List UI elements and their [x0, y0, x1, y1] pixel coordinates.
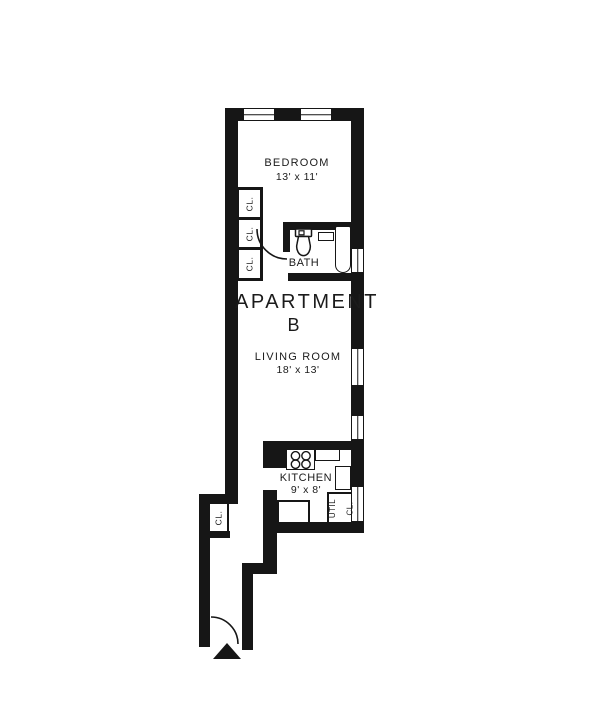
floor-plan: CL. CL. CL. UTIL CL. CL.: [0, 0, 600, 716]
utility-closet: UTIL CL.: [327, 492, 351, 522]
bedroom-dims: 13' x 11': [247, 171, 347, 183]
utility-closet-label: UTIL: [328, 498, 337, 517]
corridor-right-wall: [242, 574, 253, 650]
kitchen-dims: 9' x 8': [276, 484, 336, 496]
kitchen-counter-corner: [263, 441, 286, 468]
living-room-label: LIVING ROOM: [244, 351, 352, 364]
stove-burners-icon: [286, 449, 315, 470]
window-symbol: [351, 348, 364, 386]
living-room-dims: 18' x 13': [244, 364, 352, 376]
closet-label: CL.: [213, 510, 223, 525]
bedroom-label: BEDROOM: [247, 157, 347, 170]
hall-closet-bottom-wall: [199, 531, 230, 538]
hall-closet: CL.: [210, 504, 229, 531]
bathtub-icon: [335, 226, 351, 273]
bedroom-closet-1: CL.: [236, 187, 263, 220]
sink-icon: [318, 232, 334, 241]
bath-label: BATH: [283, 257, 325, 270]
window-symbol: [243, 108, 275, 121]
kitchen-label: KITCHEN: [276, 472, 336, 485]
kitchen-cabinet: [277, 500, 310, 524]
closet-label: CL.: [244, 196, 254, 211]
window-symbol: [351, 248, 364, 273]
closet-label: CL.: [244, 257, 254, 272]
utility-closet-label: CL.: [346, 501, 355, 515]
toilet-icon: [292, 228, 316, 258]
kitchen-west-wall: [263, 490, 277, 570]
window-symbol: [351, 415, 364, 440]
apartment-title: APARTMENT: [235, 291, 353, 314]
window-symbol: [300, 108, 332, 121]
corridor-jog-wall: [242, 563, 277, 574]
apartment-letter: B: [235, 315, 353, 336]
refrigerator: [335, 466, 351, 490]
kitchen-counter: [315, 449, 340, 461]
closet-label: CL.: [244, 226, 254, 241]
entry-arrow-icon: [213, 643, 241, 659]
bath-bottom-wall: [288, 273, 351, 281]
